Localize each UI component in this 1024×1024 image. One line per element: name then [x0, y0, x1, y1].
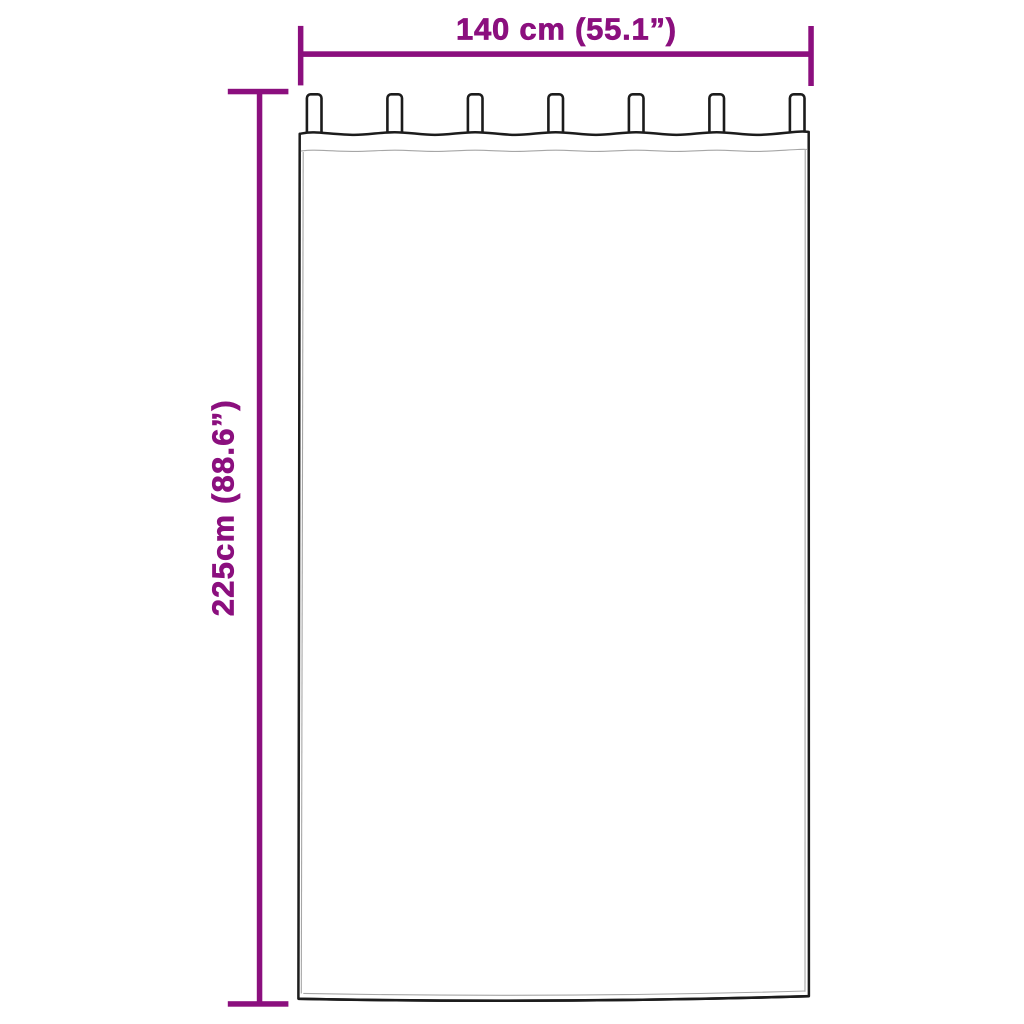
svg-text:140 cm (55.1”): 140 cm (55.1”) — [456, 11, 677, 46]
svg-text:225cm (88.6”): 225cm (88.6”) — [206, 399, 241, 616]
